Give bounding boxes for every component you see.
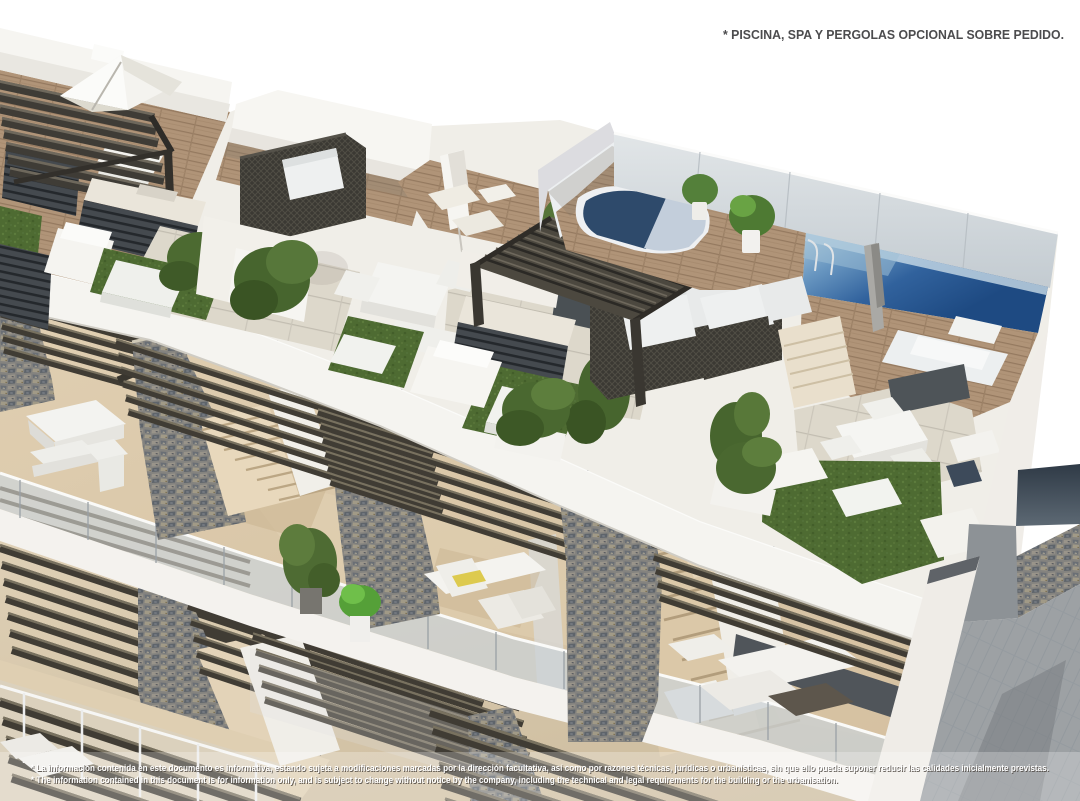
svg-text:* PISCINA, SPA Y PERGOLAS OPCI: * PISCINA, SPA Y PERGOLAS OPCIONAL SOBRE… — [723, 27, 1064, 42]
svg-text:* La información contenida en: * La información contenida en este docum… — [31, 763, 1049, 773]
svg-text:* The information contained in: * The information contained in this docu… — [31, 775, 838, 785]
